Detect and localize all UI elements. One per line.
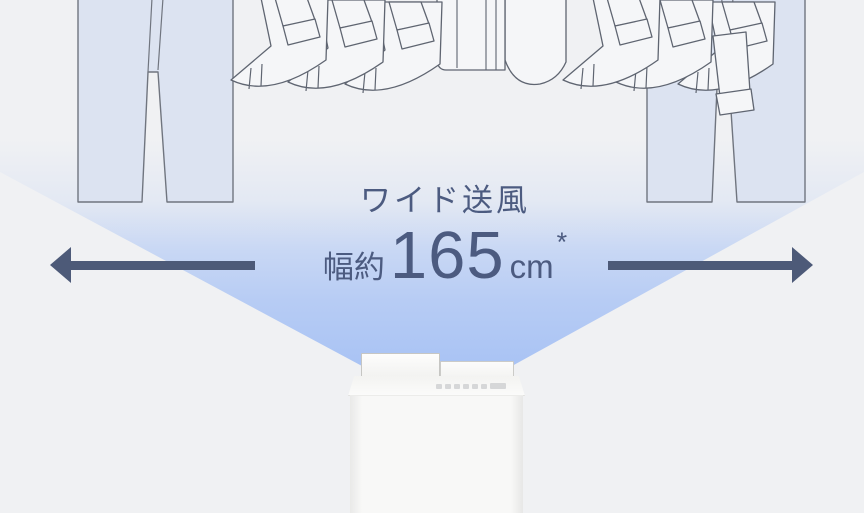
width-prefix: 幅約 [323,252,385,283]
panel-button [454,384,460,389]
panel-button [472,384,478,389]
footnote-asterisk: * [557,229,568,256]
width-value: 165 [390,222,505,289]
panel-button [481,384,487,389]
width-spec: 幅約165cm* [26,222,864,289]
shirt-center-front [437,0,505,70]
width-unit: cm [510,250,554,283]
panel-button [436,384,442,389]
shirt-center-back [505,0,566,85]
panel-button [463,384,469,389]
airflow-measurement: ワイド送風 幅約165cm* [0,184,864,289]
product-airflow-illustration: ワイド送風 幅約165cm* [0,0,864,512]
panel-button [445,384,451,389]
control-panel-buttons [436,383,506,389]
panel-display [490,383,506,389]
appliance-front-face [350,395,523,513]
dehumidifier-illustration [348,352,525,512]
airflow-label: ワイド送風 [26,184,864,218]
pants-left [78,0,233,202]
